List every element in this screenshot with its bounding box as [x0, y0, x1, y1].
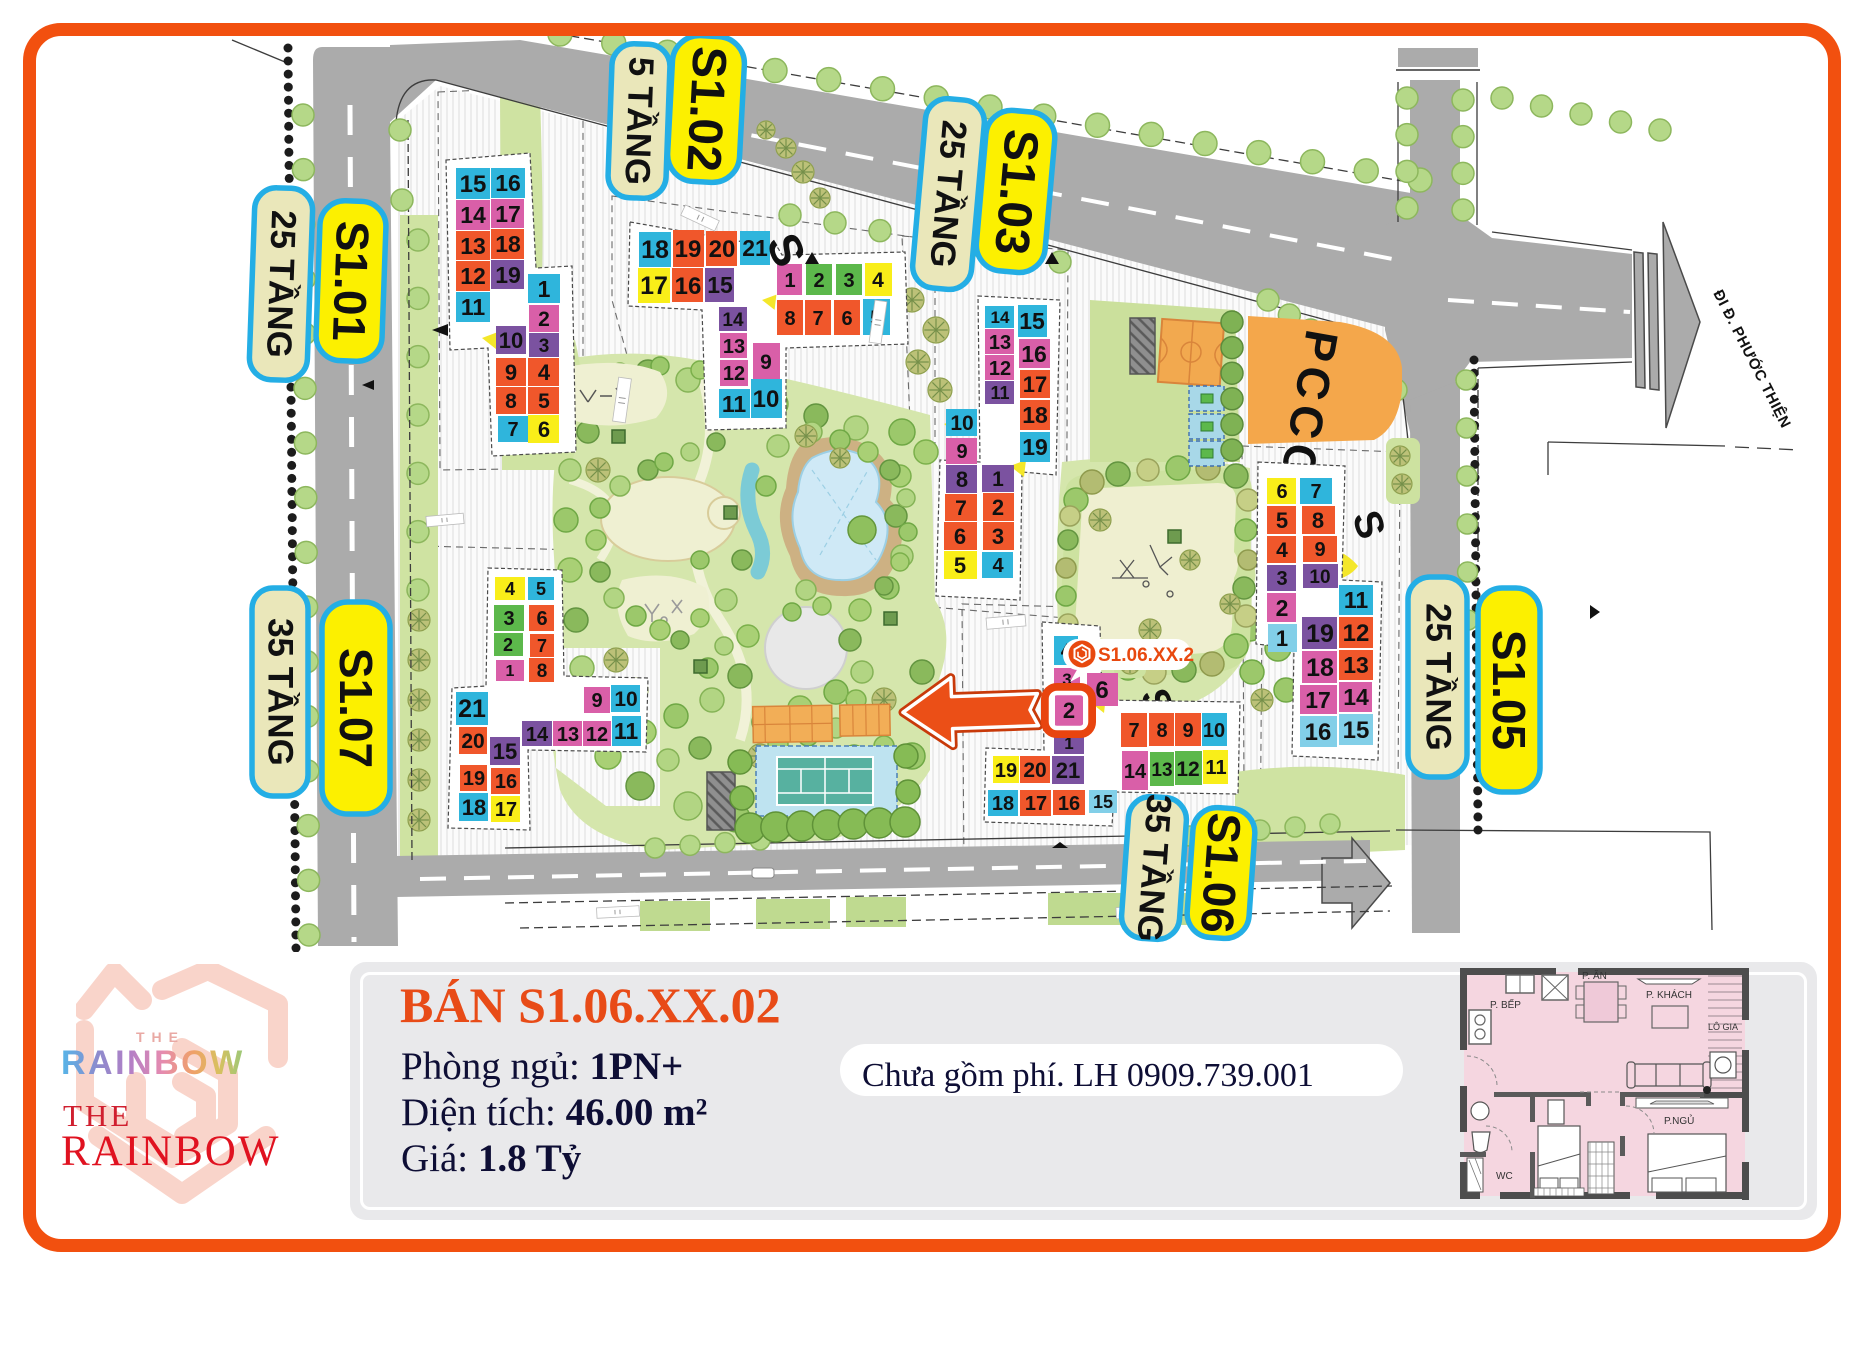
- svg-text:5: 5: [1276, 508, 1288, 533]
- svg-text:21: 21: [1056, 758, 1080, 783]
- svg-text:13: 13: [1343, 652, 1369, 678]
- svg-text:19: 19: [675, 236, 702, 263]
- svg-text:11: 11: [1344, 587, 1369, 613]
- svg-text:11: 11: [1205, 757, 1226, 779]
- svg-text:10: 10: [614, 688, 637, 711]
- svg-text:8: 8: [505, 390, 517, 413]
- svg-text:17: 17: [1025, 793, 1047, 815]
- svg-text:1: 1: [992, 468, 1004, 491]
- svg-text:LÔ GIA: LÔ GIA: [1708, 1022, 1738, 1032]
- svg-text:ĐI Đ. PHƯỚC THIỆN: ĐI Đ. PHƯỚC THIỆN: [1709, 287, 1794, 431]
- svg-text:P. KHÁCH: P. KHÁCH: [1646, 988, 1692, 1001]
- svg-text:14: 14: [991, 308, 1010, 327]
- svg-text:13: 13: [989, 332, 1011, 354]
- svg-text:8: 8: [956, 467, 968, 492]
- svg-text:20: 20: [461, 730, 484, 753]
- svg-text:S1.02: S1.02: [676, 45, 735, 173]
- svg-text:19: 19: [1306, 620, 1334, 648]
- svg-text:8: 8: [1156, 720, 1167, 742]
- svg-text:1: 1: [1276, 626, 1288, 651]
- svg-text:9: 9: [505, 360, 517, 385]
- svg-text:14: 14: [460, 202, 486, 228]
- svg-text:2: 2: [1063, 698, 1075, 723]
- svg-text:17: 17: [495, 799, 517, 821]
- svg-text:12: 12: [723, 363, 745, 385]
- svg-text:7: 7: [507, 419, 518, 441]
- svg-text:6: 6: [538, 417, 550, 442]
- svg-text:11: 11: [990, 383, 1009, 403]
- svg-text:9: 9: [1314, 539, 1325, 561]
- svg-text:16: 16: [1058, 793, 1080, 815]
- svg-text:17: 17: [1305, 687, 1331, 713]
- svg-text:3: 3: [539, 336, 550, 357]
- svg-text:7: 7: [955, 497, 967, 520]
- svg-text:2: 2: [1276, 595, 1289, 621]
- svg-text:12: 12: [1176, 758, 1199, 781]
- svg-text:5: 5: [536, 579, 546, 599]
- svg-text:S1.03: S1.03: [984, 127, 1048, 257]
- svg-text:14: 14: [1343, 684, 1369, 710]
- svg-text:8: 8: [537, 661, 548, 682]
- svg-text:35 TẦNG: 35 TẦNG: [261, 618, 301, 766]
- svg-text:25 TẦNG: 25 TẦNG: [259, 209, 304, 358]
- svg-text:5 TẦNG: 5 TẦNG: [617, 56, 661, 186]
- svg-text:2: 2: [538, 308, 550, 331]
- svg-text:RAINBOW: RAINBOW: [61, 1044, 245, 1082]
- svg-text:16: 16: [675, 273, 702, 300]
- svg-text:18: 18: [1022, 402, 1048, 428]
- svg-text:2: 2: [503, 635, 513, 655]
- svg-text:4: 4: [1276, 539, 1288, 562]
- svg-text:15: 15: [460, 171, 487, 198]
- svg-text:20: 20: [709, 236, 736, 263]
- svg-text:P. ĂN: P. ĂN: [1582, 969, 1607, 982]
- svg-text:6: 6: [1095, 677, 1108, 704]
- svg-text:2: 2: [992, 495, 1004, 520]
- svg-text:15: 15: [493, 739, 517, 764]
- svg-text:5: 5: [538, 390, 550, 413]
- svg-text:17: 17: [1023, 372, 1047, 397]
- svg-text:10: 10: [499, 328, 523, 353]
- svg-text:S1.06: S1.06: [1191, 811, 1251, 935]
- svg-text:11: 11: [722, 391, 747, 417]
- svg-text:7: 7: [1310, 481, 1321, 503]
- svg-text:8: 8: [784, 308, 795, 330]
- svg-text:19: 19: [463, 768, 485, 790]
- svg-text:6: 6: [1276, 481, 1287, 503]
- svg-text:18: 18: [495, 231, 521, 257]
- svg-text:15: 15: [1093, 792, 1113, 812]
- svg-text:12: 12: [989, 358, 1011, 380]
- svg-text:1: 1: [784, 270, 795, 292]
- svg-text:16: 16: [495, 771, 517, 793]
- svg-text:6: 6: [841, 308, 852, 330]
- svg-text:16: 16: [1021, 341, 1047, 367]
- svg-text:7: 7: [1128, 720, 1139, 742]
- svg-text:S1.01: S1.01: [323, 220, 379, 342]
- svg-text:4: 4: [992, 555, 1004, 577]
- svg-text:S1.07: S1.07: [330, 648, 382, 768]
- svg-text:17: 17: [495, 201, 521, 227]
- svg-text:9: 9: [760, 351, 772, 374]
- svg-text:10: 10: [1203, 720, 1225, 742]
- svg-text:S1.06.XX.2: S1.06.XX.2: [1098, 645, 1194, 666]
- svg-text:11: 11: [614, 718, 639, 744]
- svg-text:4: 4: [505, 579, 515, 599]
- svg-text:6: 6: [954, 524, 966, 549]
- svg-text:18: 18: [641, 236, 669, 264]
- svg-text:THE: THE: [136, 1029, 185, 1045]
- svg-text:1: 1: [538, 276, 551, 302]
- svg-text:3: 3: [843, 270, 854, 292]
- svg-text:21: 21: [458, 695, 486, 723]
- svg-text:20: 20: [1023, 759, 1046, 782]
- svg-text:19: 19: [1022, 434, 1048, 460]
- svg-text:12: 12: [460, 263, 486, 289]
- svg-text:15: 15: [707, 272, 733, 298]
- svg-text:11: 11: [461, 294, 486, 320]
- svg-text:9: 9: [1182, 720, 1193, 742]
- svg-text:3: 3: [503, 608, 514, 630]
- svg-text:19: 19: [495, 262, 521, 288]
- svg-text:1: 1: [506, 663, 515, 680]
- svg-text:16: 16: [495, 170, 521, 196]
- svg-text:13: 13: [557, 724, 579, 746]
- svg-text:14: 14: [722, 310, 744, 331]
- svg-text:2: 2: [813, 270, 824, 292]
- svg-text:P. BẾP: P. BẾP: [1490, 998, 1521, 1011]
- svg-text:7: 7: [812, 308, 823, 330]
- svg-text:7: 7: [537, 636, 547, 656]
- svg-text:25 TẦNG: 25 TẦNG: [1419, 603, 1459, 751]
- svg-text:10: 10: [753, 386, 780, 413]
- svg-text:3: 3: [992, 524, 1004, 549]
- svg-text:19: 19: [995, 760, 1017, 782]
- svg-text:9: 9: [591, 690, 602, 712]
- svg-text:18: 18: [992, 793, 1014, 815]
- svg-text:14: 14: [1124, 761, 1147, 783]
- svg-text:8: 8: [1312, 508, 1324, 533]
- svg-text:16: 16: [1305, 719, 1332, 746]
- svg-text:P.NGỦ: P.NGỦ: [1664, 1114, 1694, 1127]
- svg-text:15: 15: [1343, 717, 1370, 744]
- svg-text:9: 9: [956, 441, 967, 463]
- svg-text:WC: WC: [1496, 1171, 1513, 1182]
- svg-text:17: 17: [640, 272, 668, 300]
- svg-text:4: 4: [538, 360, 551, 385]
- svg-text:3: 3: [1276, 568, 1287, 590]
- svg-text:10: 10: [950, 412, 973, 435]
- svg-text:12: 12: [586, 724, 608, 746]
- svg-text:13: 13: [1151, 760, 1172, 781]
- svg-text:14: 14: [526, 724, 549, 746]
- svg-text:18: 18: [1306, 654, 1334, 682]
- svg-text:13: 13: [460, 233, 486, 259]
- svg-text:10: 10: [1309, 567, 1330, 588]
- svg-text:4: 4: [872, 269, 884, 292]
- svg-text:15: 15: [1019, 308, 1045, 334]
- svg-text:6: 6: [536, 608, 547, 630]
- svg-text:12: 12: [1343, 620, 1370, 647]
- svg-text:13: 13: [723, 336, 745, 358]
- svg-text:18: 18: [462, 795, 486, 820]
- svg-text:S1.05: S1.05: [1483, 630, 1535, 750]
- svg-text:5: 5: [954, 553, 966, 578]
